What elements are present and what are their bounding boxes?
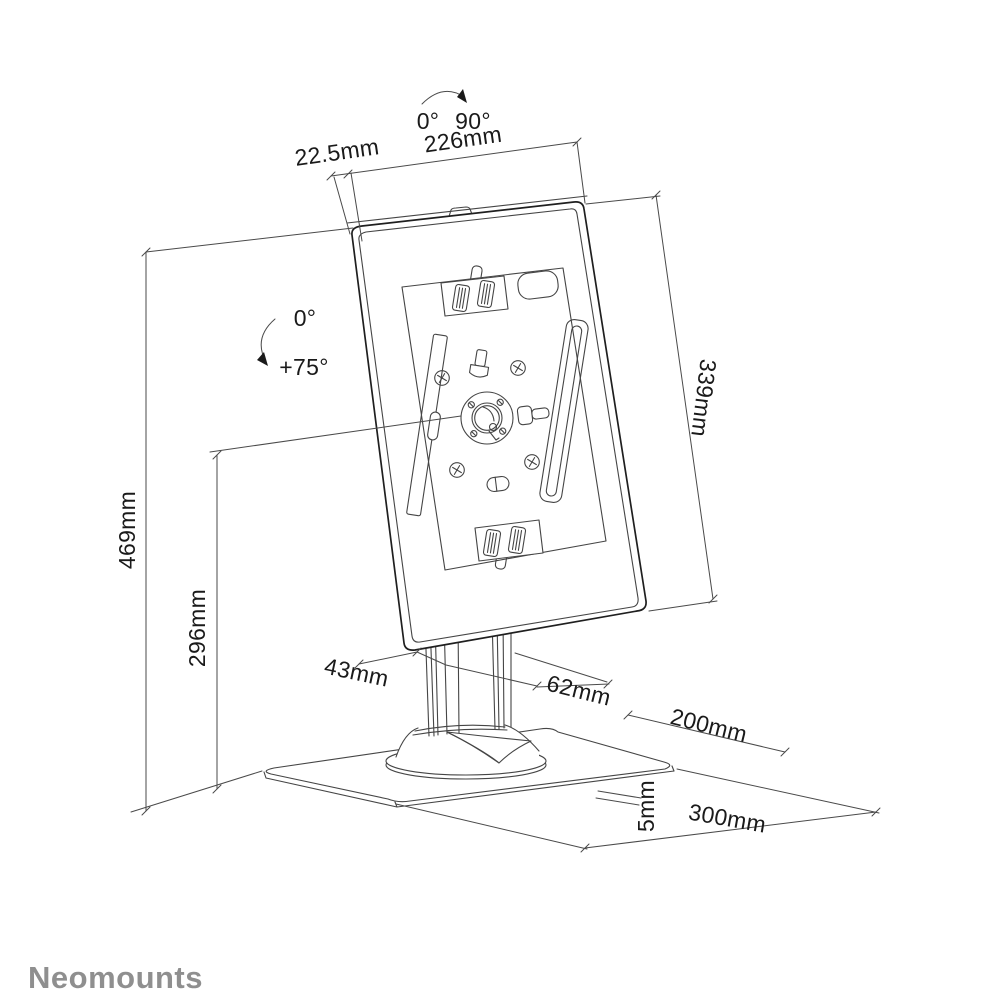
dim-rear-column: 62mm bbox=[544, 670, 613, 711]
dim-enclosure-height: 339mm bbox=[686, 358, 721, 439]
drawing-page: 0° 90° 0° +75° 22.5mm 226mm 339mm 469mm … bbox=[0, 0, 1004, 1004]
tilt-arc-side bbox=[257, 319, 275, 366]
dim-base-depth: 200mm bbox=[668, 703, 750, 747]
dim-pivot-height: 296mm bbox=[184, 589, 210, 667]
rotation-flange bbox=[461, 392, 513, 444]
dim-front-column: 43mm bbox=[322, 653, 391, 692]
arrowhead-icon bbox=[257, 352, 268, 366]
brand-logo: Neomounts bbox=[28, 960, 203, 995]
tilt-to-label: +75° bbox=[279, 354, 328, 380]
tilt-from-label: 0° bbox=[294, 305, 317, 331]
technical-drawing: 0° 90° 0° +75° 22.5mm 226mm 339mm 469mm … bbox=[0, 0, 1004, 1004]
rotation-arc-top bbox=[422, 89, 467, 104]
dim-base-width: 300mm bbox=[687, 799, 769, 838]
dim-overall-height: 469mm bbox=[114, 491, 140, 569]
dim-base-thickness: 5mm bbox=[633, 780, 659, 832]
arrowhead-icon bbox=[457, 89, 467, 103]
dim-top-offset: 22.5mm bbox=[293, 133, 381, 171]
